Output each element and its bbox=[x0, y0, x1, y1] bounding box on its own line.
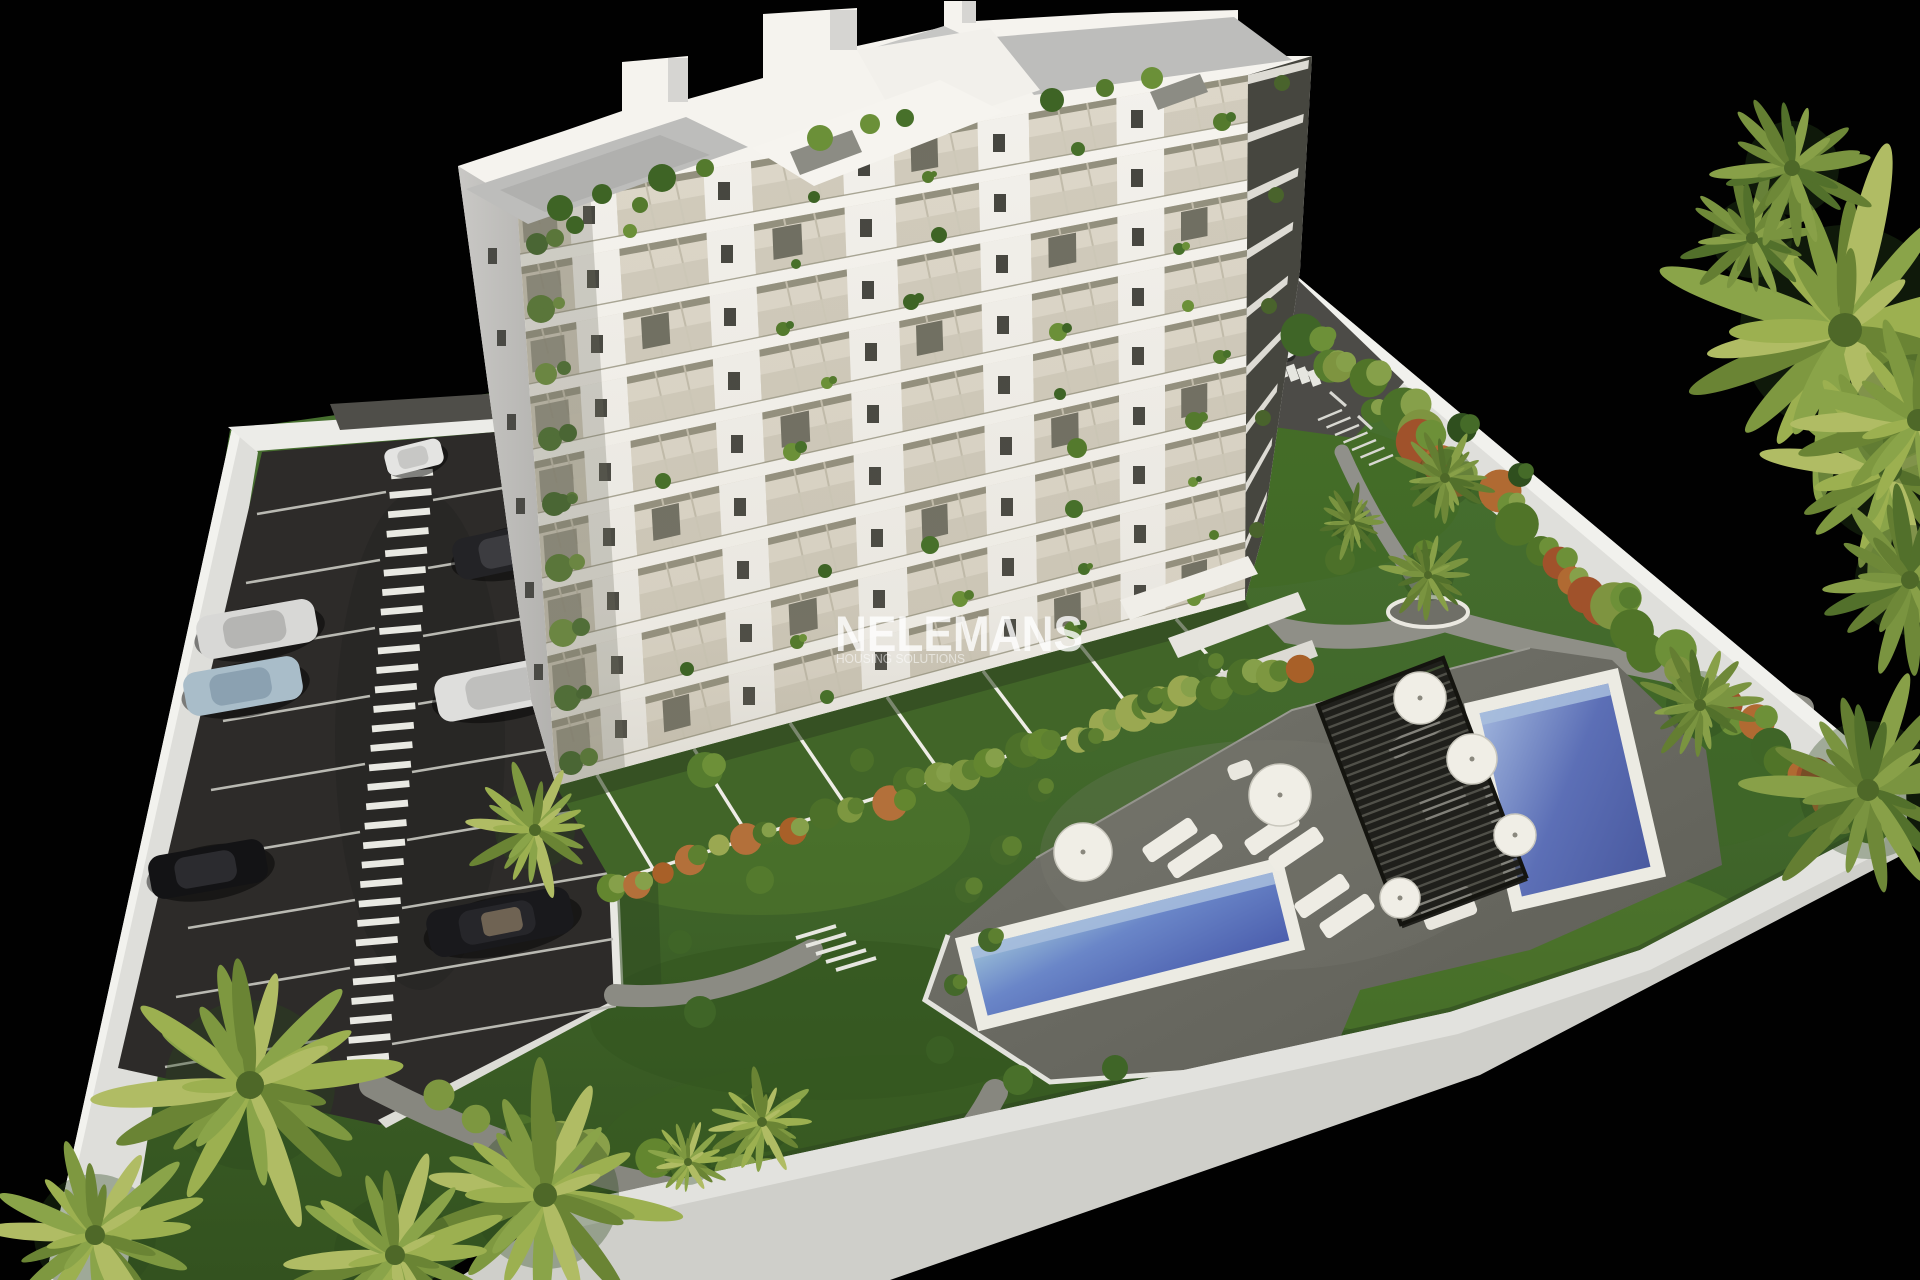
svg-text:HOUSING SOLUTIONS: HOUSING SOLUTIONS bbox=[836, 652, 965, 666]
